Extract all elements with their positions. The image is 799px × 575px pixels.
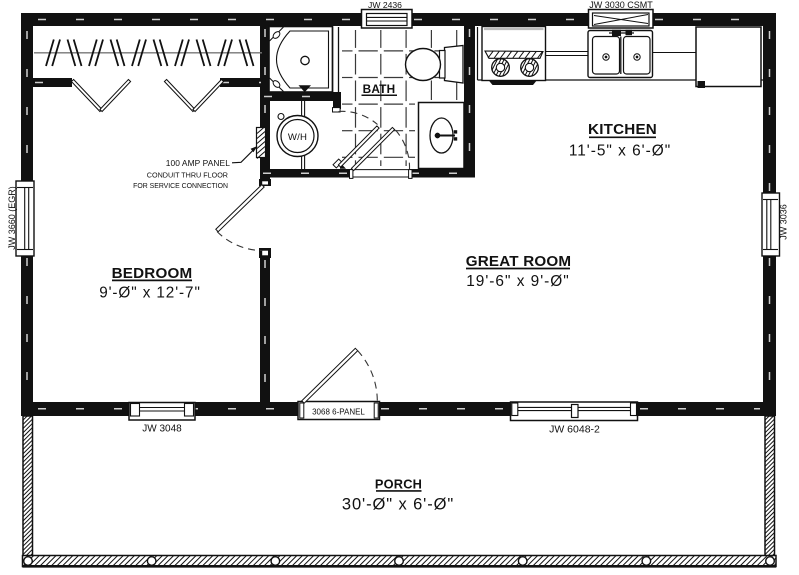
svg-text:JW 3660 (EGR): JW 3660 (EGR) — [7, 186, 17, 250]
svg-text:CONDUIT THRU FLOOR: CONDUIT THRU FLOOR — [147, 170, 228, 179]
svg-text:9'-Ø" x 12'-7": 9'-Ø" x 12'-7" — [99, 285, 201, 302]
svg-text:BEDROOM: BEDROOM — [112, 265, 193, 282]
svg-text:100 AMP PANEL: 100 AMP PANEL — [166, 158, 231, 168]
svg-text:JW 6048-2: JW 6048-2 — [549, 423, 600, 435]
svg-text:PORCH: PORCH — [375, 477, 422, 492]
svg-text:19'-6" x 9'-Ø": 19'-6" x 9'-Ø" — [466, 273, 570, 290]
svg-text:30'-Ø" x 6'-Ø": 30'-Ø" x 6'-Ø" — [342, 496, 454, 514]
svg-text:KITCHEN: KITCHEN — [588, 121, 657, 138]
svg-text:JW 3048: JW 3048 — [142, 423, 182, 434]
svg-text:JW 3030 CSMT: JW 3030 CSMT — [589, 0, 653, 10]
svg-text:BATH: BATH — [363, 82, 396, 96]
svg-text:3068 6-PANEL: 3068 6-PANEL — [312, 408, 365, 417]
svg-text:JW 2436: JW 2436 — [368, 0, 402, 10]
svg-text:GREAT ROOM: GREAT ROOM — [466, 253, 572, 270]
svg-text:JW 3036: JW 3036 — [779, 204, 789, 240]
svg-text:W/H: W/H — [288, 132, 307, 143]
svg-text:11'-5" x 6'-Ø": 11'-5" x 6'-Ø" — [569, 142, 671, 159]
svg-text:FOR SERVICE CONNECTION: FOR SERVICE CONNECTION — [133, 183, 228, 190]
